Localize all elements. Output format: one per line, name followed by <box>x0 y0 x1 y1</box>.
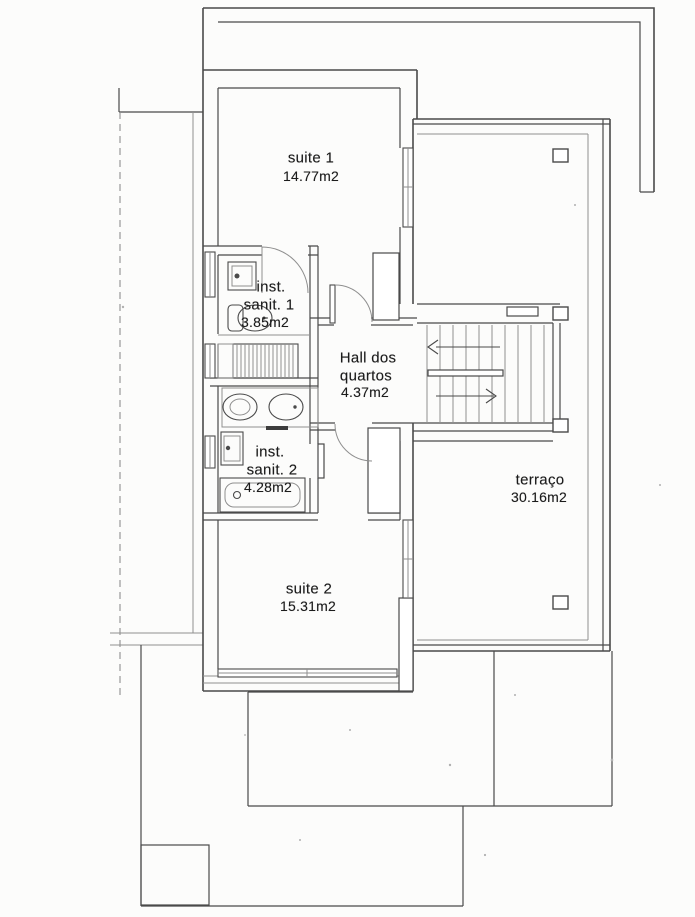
floor-plan-page: suite 1 14.77m2 inst. sanit. 1 3.85m2 Ha… <box>0 0 695 917</box>
room-area-terraco: 30.16m2 <box>511 489 567 505</box>
bidet-icon <box>223 394 257 420</box>
column-icon <box>553 149 568 162</box>
door-leaf-sanit2 <box>318 444 324 478</box>
room-label-sanit1-line2: sanit. 1 <box>244 297 295 314</box>
column-icon <box>553 596 568 609</box>
room-label-sanit2-line1: inst. <box>255 444 284 461</box>
room-label-hall-line1: Hall dos <box>340 350 397 367</box>
column-icon <box>553 307 568 320</box>
room-label-terraco: terraço <box>516 472 565 489</box>
room-label-suite2: suite 2 <box>286 581 332 598</box>
stairs <box>427 325 544 423</box>
door-leaf-hall <box>330 285 335 323</box>
room-area-sanit2: 4.28m2 <box>244 479 292 495</box>
duct-block-lower <box>368 428 400 513</box>
duct-block-upper <box>373 253 399 320</box>
room-area-suite1: 14.77m2 <box>283 168 339 184</box>
stair-handrail <box>428 370 503 376</box>
toilet-icon <box>269 394 303 420</box>
room-area-suite2: 15.31m2 <box>280 598 336 614</box>
beam-marker <box>507 307 538 316</box>
roof-outline <box>203 8 654 192</box>
room-area-sanit1: 3.85m2 <box>241 314 289 330</box>
floor-plan-drawing <box>0 0 695 917</box>
room-label-sanit2-line2: sanit. 2 <box>247 462 298 479</box>
column-icon <box>553 419 568 432</box>
room-label-hall-line2: quartos <box>340 368 392 385</box>
room-label-sanit1-line1: inst. <box>256 279 285 296</box>
terrace-walls <box>413 119 610 651</box>
door-arc-hall <box>335 285 372 322</box>
room-area-hall: 4.37m2 <box>341 384 389 400</box>
room-label-suite1: suite 1 <box>288 150 334 167</box>
door-arc-corridor <box>335 424 372 461</box>
